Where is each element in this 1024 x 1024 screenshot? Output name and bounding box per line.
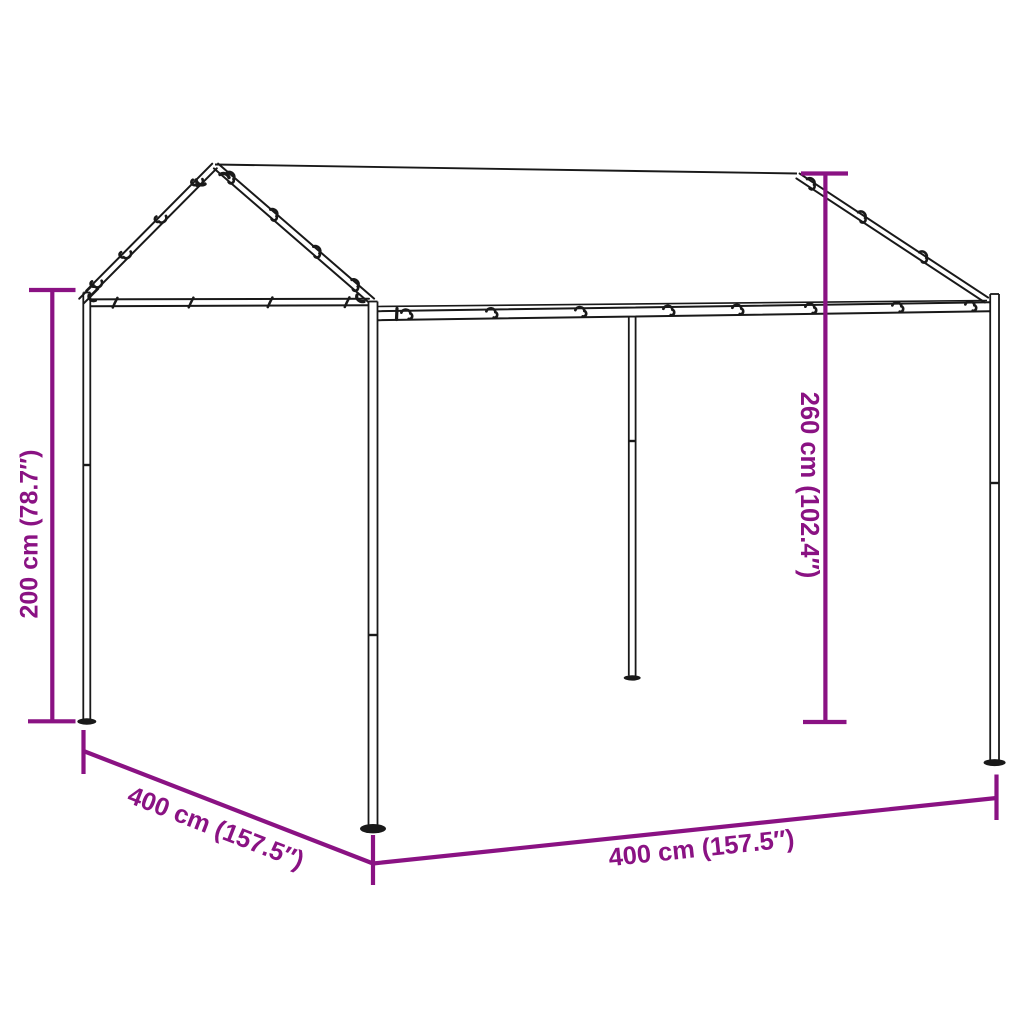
svg-text:260 cm (102.4″): 260 cm (102.4″) bbox=[795, 392, 823, 579]
svg-text:200 cm (78.7″): 200 cm (78.7″) bbox=[16, 449, 44, 618]
svg-text:400 cm (157.5″): 400 cm (157.5″) bbox=[607, 825, 795, 872]
